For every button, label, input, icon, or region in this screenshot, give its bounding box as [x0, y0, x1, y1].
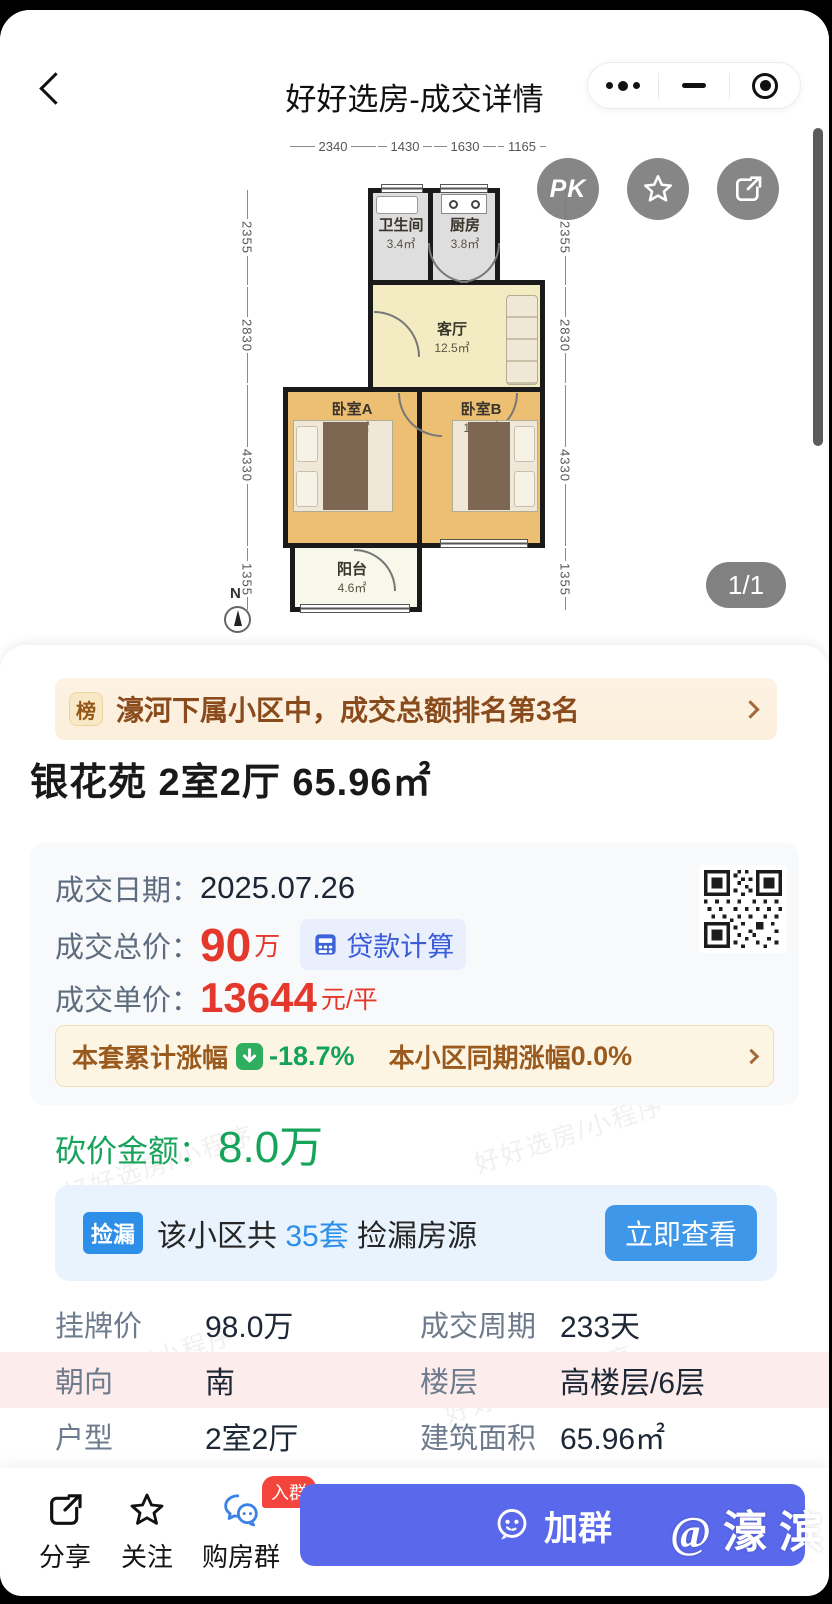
deal-date-value: 2025.07.26 — [200, 870, 355, 906]
rank-text: 濠河下属小区中，成交总额排名第3名 — [116, 689, 744, 729]
group-label: 购房群 — [202, 1537, 280, 1574]
minimize-button[interactable] — [659, 63, 729, 108]
bathtub-icon — [376, 196, 418, 214]
join-group-label: 加群 — [544, 1501, 612, 1550]
window — [440, 539, 528, 548]
share-label: 分享 — [39, 1537, 91, 1574]
dimension-right: 2830 — [556, 287, 574, 383]
duvet — [323, 422, 368, 510]
peer-change-label: 本小区同期涨幅 — [389, 1038, 571, 1075]
sofa-icon — [506, 295, 538, 385]
room-label-bathroom: 卫生间 3.4㎡ — [378, 214, 423, 252]
ellipsis-icon — [618, 81, 628, 91]
group-action[interactable]: 入群 购房群 — [186, 1490, 296, 1574]
star-icon — [641, 172, 675, 206]
deal-total-unit: 万 — [254, 926, 280, 963]
dimension-left: 2830 — [238, 287, 256, 383]
price-change-banner[interactable]: 本套累计涨幅 -18.7% 本小区同期涨幅 0.0% — [55, 1025, 774, 1087]
more-button[interactable] — [588, 63, 658, 108]
deal-unit-row: 成交单价： 13644 元/平 — [55, 977, 378, 1019]
chat-bubbles-icon — [220, 1490, 262, 1530]
table-row: 挂牌价 98.0万 成交周期 233天 — [0, 1296, 829, 1352]
deal-total-value: 90 — [200, 922, 251, 968]
compass-icon — [224, 606, 251, 633]
window — [381, 184, 423, 193]
dimension-top: 1430 — [378, 139, 432, 154]
pk-button[interactable]: PK — [537, 158, 599, 220]
bargain-value: 8.0万 — [218, 1111, 323, 1175]
deal-date-row: 成交日期： 2025.07.26 — [55, 867, 355, 909]
dimension-left: 4330 — [238, 385, 256, 546]
share-action[interactable]: 分享 — [22, 1490, 108, 1574]
deal-date-label: 成交日期： — [55, 867, 200, 909]
deal-unit-value: 13644 — [200, 977, 317, 1019]
dimension-left: 2355 — [238, 190, 256, 285]
star-icon — [127, 1490, 167, 1530]
window — [440, 184, 488, 193]
phone-screen: 好好选房-成交详情 2340 — [0, 0, 832, 1604]
share-button[interactable] — [717, 158, 779, 220]
cumulative-change-label: 本套累计涨幅 — [72, 1038, 228, 1075]
view-now-button[interactable]: 立即查看 — [605, 1205, 757, 1261]
room-label-kitchen: 厨房 3.8㎡ — [450, 214, 480, 252]
deal-total-label: 成交总价： — [55, 924, 200, 966]
floorplan-image[interactable]: 2340 1430 1630 1165 2355 2830 4330 1355 … — [0, 125, 829, 655]
room-label-living: 客厅 12.5㎡ — [434, 318, 469, 356]
listing-title: 银花苑 2室2厅 65.96㎡ — [30, 751, 431, 806]
loan-calculator-button[interactable]: 贷款计算 — [300, 919, 466, 970]
dimension-right: 4330 — [556, 385, 574, 546]
chevron-right-icon — [744, 1048, 760, 1064]
miniprogram-capsule — [587, 62, 801, 109]
bargain-row: 砍价金额： 8.0万 — [55, 1111, 323, 1175]
deal-info-card: 成交日期： 2025.07.26 成交总价： 90 万 — [30, 843, 799, 1105]
bargain-listings-text: 该小区共 35套 捡漏房源 — [157, 1211, 477, 1255]
target-icon — [752, 73, 778, 99]
details-table: 挂牌价 98.0万 成交周期 233天 朝向 南 楼层 高楼层/6层 户型 2室… — [0, 1296, 829, 1464]
app-window: 好好选房-成交详情 2340 — [0, 10, 829, 1596]
join-group-button[interactable]: 加群 — [300, 1484, 805, 1566]
dimension-right: 1355 — [556, 548, 574, 610]
deal-unit-suffix: 元/平 — [321, 980, 378, 1016]
dimension-top: 1165 — [498, 139, 546, 154]
table-row: 户型 2室2厅 建筑面积 65.96㎡ — [0, 1408, 829, 1464]
pillow — [514, 426, 535, 462]
image-page-indicator: 1/1 — [706, 562, 786, 608]
header: 好好选房-成交详情 — [0, 10, 829, 125]
rank-banner[interactable]: 榜 濠河下属小区中，成交总额排名第3名 — [55, 678, 777, 740]
bargain-listings-banner: 捡漏 该小区共 35套 捡漏房源 立即查看 — [55, 1185, 777, 1281]
external-share-icon — [732, 173, 764, 205]
dimension-top: 2340 — [290, 139, 376, 154]
rank-badge-icon: 榜 — [69, 692, 103, 726]
pillow — [296, 426, 318, 462]
favorite-button[interactable] — [627, 158, 689, 220]
follow-label: 关注 — [121, 1537, 173, 1574]
scrollbar[interactable] — [813, 128, 823, 446]
minus-icon — [682, 83, 706, 88]
dimension-top: 1630 — [434, 139, 496, 154]
cumulative-change-value: -18.7% — [269, 1041, 355, 1072]
close-button[interactable] — [730, 63, 800, 108]
follow-action[interactable]: 关注 — [104, 1490, 190, 1574]
pillow — [296, 471, 318, 507]
stove-icon — [441, 194, 487, 214]
loan-calculator-label: 贷款计算 — [346, 925, 454, 964]
bargain-badge: 捡漏 — [83, 1212, 143, 1254]
arrow-down-icon — [236, 1043, 263, 1070]
calculator-icon — [312, 931, 339, 958]
smiley-bubble-icon — [493, 1506, 531, 1544]
bottom-bar: 分享 关注 入群 购房群 — [0, 1468, 829, 1596]
ellipsis-icon — [633, 82, 640, 89]
duvet — [468, 422, 510, 510]
chevron-right-icon — [741, 700, 759, 718]
qr-code — [699, 865, 787, 953]
listing-count: 35套 — [285, 1220, 348, 1253]
pillow — [514, 471, 535, 507]
bargain-label: 砍价金额： — [55, 1126, 210, 1171]
detail-card: 好好选房/小程序 好好选房/小程序 好好选房/小程序 好好选房/小程序 好好选房… — [0, 645, 829, 1468]
external-share-icon — [45, 1490, 85, 1530]
deal-unit-label: 成交单价： — [55, 977, 200, 1019]
window — [300, 604, 410, 613]
room-label-balcony: 阳台 4.6㎡ — [337, 558, 367, 596]
deal-total-row: 成交总价： 90 万 贷款计算 — [55, 919, 466, 970]
table-row: 朝向 南 楼层 高楼层/6层 — [0, 1352, 829, 1408]
north-label: N — [230, 585, 241, 602]
peer-change-value: 0.0% — [571, 1041, 633, 1072]
ellipsis-icon — [606, 82, 613, 89]
